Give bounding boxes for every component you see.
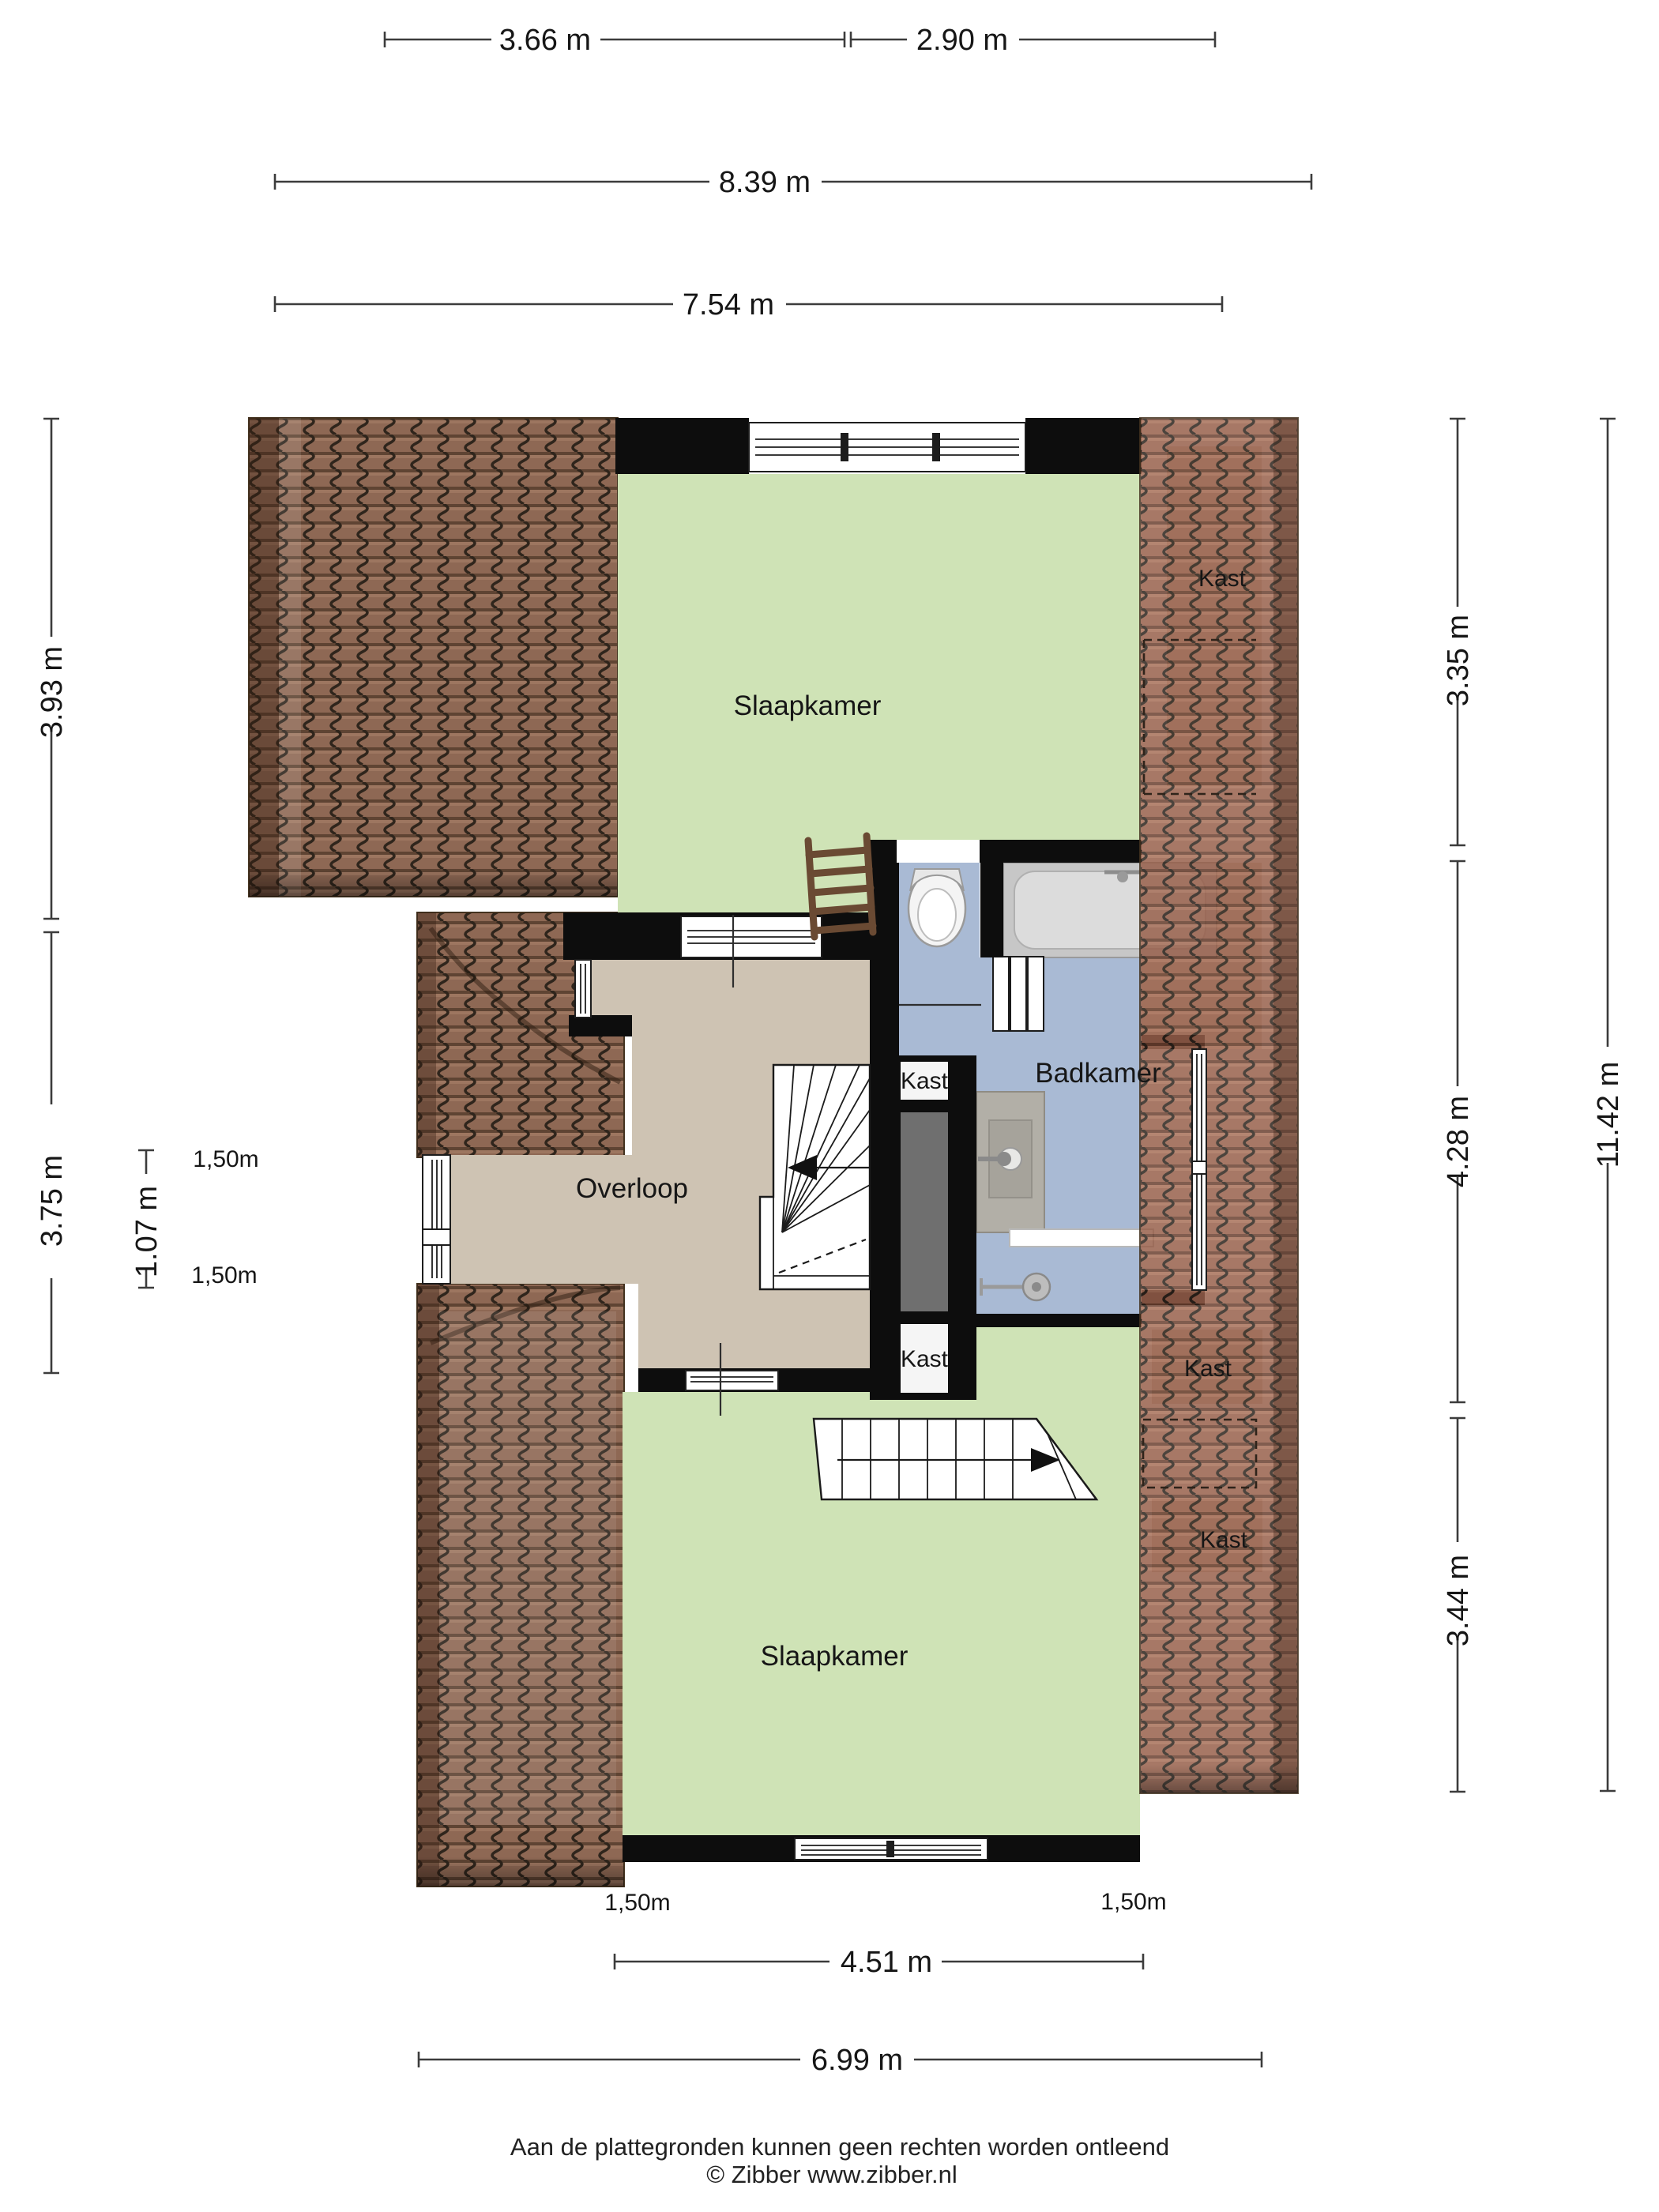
window-landing-bottom xyxy=(686,1371,778,1390)
dim-bottom-inner: 4.51 m xyxy=(615,1946,1143,1979)
label-landing: Overloop xyxy=(576,1173,688,1204)
bath-shelf xyxy=(1010,1229,1153,1247)
roof-right xyxy=(1140,418,1298,1793)
dim-width-inner: 7.54 m xyxy=(275,288,1222,322)
label-knee-bottom-left: 1,50m xyxy=(604,1890,670,1916)
footer: Aan de plattegronden kunnen geen rechten… xyxy=(510,2133,1169,2188)
floorplan-page: Slaapkamer Slaapkamer Overloop Badkamer … xyxy=(0,0,1659,2212)
svg-text:1.07 m: 1.07 m xyxy=(130,1186,164,1277)
wall-toilet-divider xyxy=(980,863,1003,957)
wall-landing-stub xyxy=(569,1015,632,1036)
door-toilet xyxy=(897,840,980,863)
window-landing-top xyxy=(681,916,822,957)
svg-text:3.44 m: 3.44 m xyxy=(1442,1555,1475,1646)
label-closet-shaft-upper: Kast xyxy=(901,1068,949,1094)
window-top xyxy=(749,423,1025,472)
window-bathroom-right xyxy=(1192,1049,1206,1290)
label-knee-bottom-right: 1,50m xyxy=(1100,1889,1166,1915)
label-knee-left-upper: 1,50m xyxy=(193,1146,258,1172)
svg-text:7.54 m: 7.54 m xyxy=(683,288,774,322)
room-bedroom-bottom xyxy=(623,1327,1140,1835)
svg-text:4.51 m: 4.51 m xyxy=(841,1946,932,1979)
dim-top-left: 3.66 m xyxy=(385,24,845,57)
svg-text:8.39 m: 8.39 m xyxy=(719,166,811,199)
window-bedroom-bottom xyxy=(795,1838,987,1860)
roof-areas xyxy=(249,418,624,1887)
label-closet-roof-bottom: Kast xyxy=(1200,1527,1248,1553)
svg-text:3.35 m: 3.35 m xyxy=(1442,615,1475,706)
roof-top-left xyxy=(249,418,618,897)
window-landing-left xyxy=(423,1155,450,1284)
dim-right-total: 11.42 m xyxy=(1592,419,1625,1791)
footer-disclaimer: Aan de plattegronden kunnen geen rechten… xyxy=(510,2133,1169,2161)
shaft xyxy=(901,1112,948,1311)
stairs-winder xyxy=(760,1065,870,1289)
footer-copyright: © Zibber www.zibber.nl xyxy=(706,2161,957,2188)
roof-bottom-left xyxy=(417,1284,624,1887)
label-closet-roof-top: Kast xyxy=(1198,566,1247,592)
toilet-icon xyxy=(908,869,965,946)
dim-left-mid: 3.75 m xyxy=(36,932,69,1373)
label-closet-roof-mid: Kast xyxy=(1184,1356,1232,1382)
washbasin-icon xyxy=(976,1092,1044,1232)
dim-right-mid: 4.28 m xyxy=(1442,861,1475,1402)
label-bedroom-bottom: Slaapkamer xyxy=(761,1641,908,1672)
window-landing-upper-left xyxy=(575,960,591,1018)
shower-screen-icon xyxy=(993,957,1044,1031)
wall-bathroom-bottom xyxy=(976,1314,1142,1327)
label-bathroom: Badkamer xyxy=(1035,1058,1161,1089)
svg-text:4.28 m: 4.28 m xyxy=(1442,1096,1475,1187)
label-bedroom-top: Slaapkamer xyxy=(734,690,882,721)
wall-top-left xyxy=(615,418,749,474)
wall-top-right xyxy=(1025,418,1142,474)
svg-text:11.42 m: 11.42 m xyxy=(1592,1062,1625,1168)
label-closet-shaft-lower: Kast xyxy=(901,1346,949,1372)
dim-left-top: 3.93 m xyxy=(36,419,69,919)
dim-right-top: 3.35 m xyxy=(1442,419,1475,845)
svg-text:2.90 m: 2.90 m xyxy=(916,24,1008,57)
dim-right-bottom: 3.44 m xyxy=(1442,1418,1475,1792)
dim-bottom-total: 6.99 m xyxy=(419,2044,1262,2077)
dim-left-small: 1.07 m xyxy=(130,1150,164,1288)
svg-text:3.93 m: 3.93 m xyxy=(36,646,69,738)
svg-text:3.66 m: 3.66 m xyxy=(499,24,591,57)
dim-top-right: 2.90 m xyxy=(851,24,1215,57)
svg-text:6.99 m: 6.99 m xyxy=(811,2044,903,2077)
label-knee-left-lower: 1,50m xyxy=(191,1262,257,1288)
svg-text:3.75 m: 3.75 m xyxy=(36,1155,69,1247)
dim-width-total: 8.39 m xyxy=(275,166,1311,199)
floorplan-drawing: Slaapkamer Slaapkamer Overloop Badkamer … xyxy=(0,0,1659,2212)
